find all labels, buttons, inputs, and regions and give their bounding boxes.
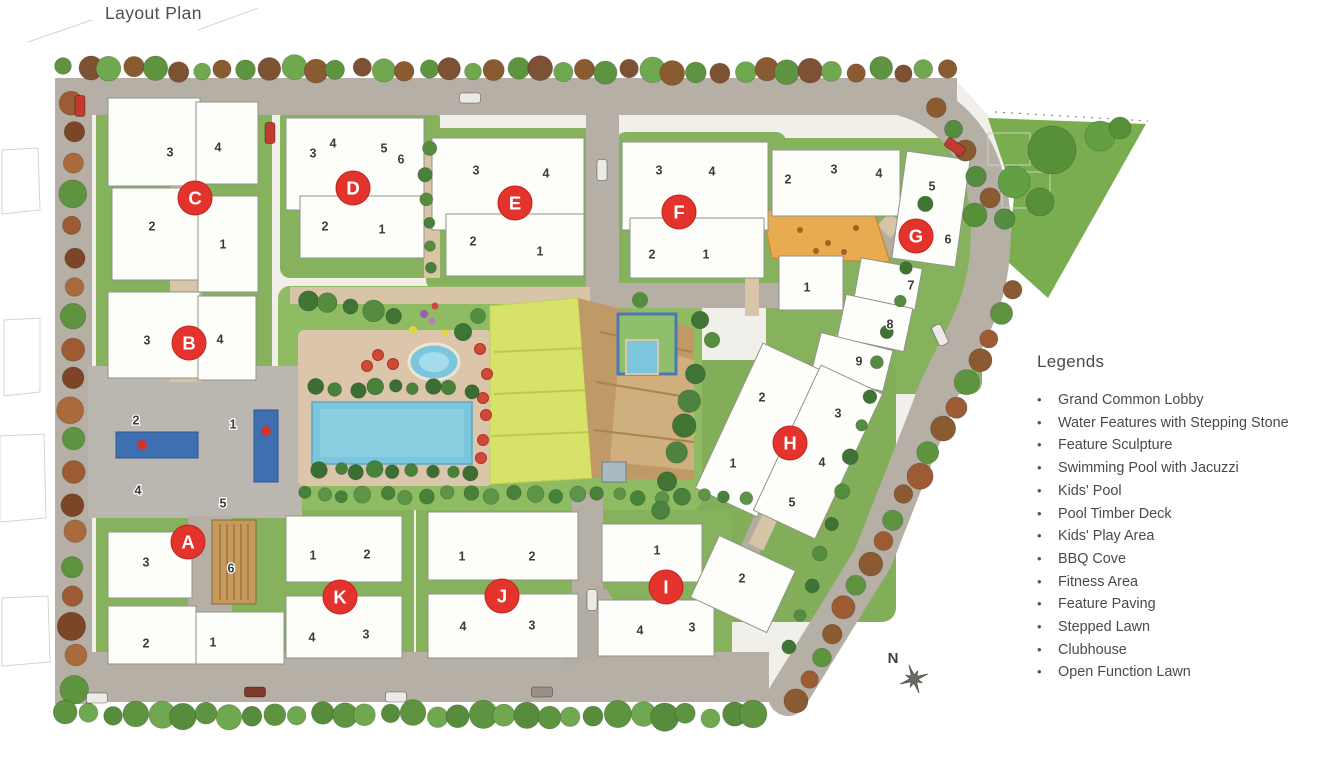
building-block: [286, 516, 402, 582]
tree-icon: [907, 463, 933, 489]
tree-icon: [874, 532, 893, 551]
map-detail: [419, 352, 449, 372]
map-area: [586, 113, 619, 305]
legend-item: •Pool Timber Deck: [1037, 503, 1323, 526]
tree-icon: [739, 700, 767, 728]
tree-icon: [242, 706, 262, 726]
tree-icon: [287, 706, 306, 725]
tree-icon: [590, 487, 604, 501]
tree-icon: [353, 704, 375, 726]
tree-icon: [463, 466, 478, 481]
map-area: [254, 410, 278, 482]
block-marker-J: J: [485, 579, 519, 613]
tree-icon: [424, 217, 435, 228]
car-icon: [265, 123, 275, 144]
tree-icon: [53, 700, 77, 724]
tree-icon: [651, 703, 679, 731]
building-block: [779, 256, 843, 310]
tree-icon: [143, 56, 167, 80]
tree-icon: [425, 241, 436, 252]
tree-icon: [61, 494, 84, 517]
tree-icon: [938, 60, 957, 79]
unit-number: 1: [703, 248, 710, 262]
tree-icon: [372, 59, 395, 82]
tree-icon: [549, 490, 563, 504]
tree-icon: [740, 492, 753, 505]
tree-icon: [405, 464, 418, 477]
bullet-icon: •: [1037, 525, 1058, 548]
tree-icon: [418, 168, 432, 182]
tree-icon: [900, 262, 913, 275]
unit-number: 3: [656, 164, 663, 178]
map-detail: [442, 330, 449, 337]
bullet-icon: •: [1037, 389, 1058, 412]
tree-icon: [441, 380, 456, 395]
unit-number: 3: [689, 621, 696, 635]
tree-icon: [194, 63, 211, 80]
tree-icon: [1003, 280, 1022, 299]
tree-icon: [317, 293, 337, 313]
tree-icon: [554, 62, 573, 81]
tree-icon: [1109, 117, 1131, 139]
block-marker-B: B: [172, 326, 206, 360]
unit-number: 4: [460, 620, 467, 634]
tree-icon: [65, 278, 84, 297]
tree-icon: [308, 378, 324, 394]
tree-icon: [825, 517, 838, 530]
tree-icon: [914, 60, 933, 79]
bullet-icon: •: [1037, 639, 1058, 662]
unit-number: 1: [654, 544, 661, 558]
unit-number: 6: [945, 233, 952, 247]
tree-icon: [594, 61, 617, 84]
compass-north-label: N: [888, 650, 899, 667]
block-marker-letter: G: [909, 226, 923, 247]
bullet-icon: •: [1037, 412, 1058, 435]
bullet-icon: •: [1037, 616, 1058, 639]
tree-icon: [419, 489, 434, 504]
tree-icon: [304, 59, 328, 83]
unit-number: 3: [831, 163, 838, 177]
building-block: [446, 214, 584, 276]
legend-item: •Fitness Area: [1037, 571, 1323, 594]
tree-icon: [264, 704, 286, 726]
tree-icon: [336, 463, 348, 475]
tree-icon: [856, 419, 868, 431]
tree-icon: [507, 485, 521, 499]
tree-icon: [678, 390, 701, 413]
unit-number: 5: [929, 180, 936, 194]
map-detail: [797, 227, 803, 233]
block-marker-G: G: [899, 219, 933, 253]
tree-icon: [311, 702, 334, 725]
unit-number: 2: [133, 414, 140, 428]
tree-icon: [847, 64, 865, 82]
tree-icon: [863, 390, 877, 404]
tree-icon: [354, 486, 371, 503]
tree-icon: [980, 188, 1000, 208]
car-icon: [75, 96, 85, 117]
block-marker-C: C: [178, 181, 212, 215]
map-detail: [704, 332, 720, 348]
map-area: [602, 462, 626, 482]
tree-icon: [426, 379, 442, 395]
tree-icon: [1028, 126, 1076, 174]
tree-icon: [917, 442, 939, 464]
unit-number: 5: [789, 496, 796, 510]
unit-number: 2: [785, 173, 792, 187]
tree-icon: [168, 62, 189, 83]
legend-list: •Grand Common Lobby•Water Features with …: [1037, 389, 1323, 684]
block-marker-I: I: [649, 570, 683, 604]
unit-number: 1: [459, 550, 466, 564]
map-detail: [362, 361, 373, 372]
tree-icon: [438, 57, 460, 79]
tree-icon: [990, 302, 1012, 324]
tree-icon: [859, 552, 883, 576]
tree-icon: [318, 488, 331, 501]
bullet-icon: •: [1037, 457, 1058, 480]
map-area: [762, 210, 890, 262]
unit-number: 2: [529, 550, 536, 564]
tree-icon: [62, 586, 83, 607]
tree-icon: [813, 648, 832, 667]
unit-number: 1: [537, 245, 544, 259]
unit-number: 4: [543, 167, 550, 181]
tree-icon: [560, 707, 580, 727]
building-block: [108, 98, 200, 186]
tree-icon: [701, 709, 720, 728]
legend-item: •Stepped Lawn: [1037, 616, 1323, 639]
tree-icon: [832, 596, 855, 619]
building-block: [428, 512, 578, 580]
tree-icon: [812, 546, 827, 561]
unit-number: 3: [310, 147, 317, 161]
tree-icon: [994, 209, 1015, 230]
map-detail: [476, 453, 487, 464]
tree-icon: [258, 58, 281, 81]
tree-icon: [62, 460, 85, 483]
bullet-icon: •: [1037, 503, 1058, 526]
tree-icon: [216, 704, 242, 730]
tree-icon: [954, 370, 979, 395]
tree-icon: [946, 397, 967, 418]
block-marker-letter: K: [333, 587, 347, 608]
unit-number: 4: [637, 624, 644, 638]
tree-icon: [798, 58, 823, 83]
building-block: [602, 524, 702, 582]
tree-icon: [381, 704, 400, 723]
tree-icon: [966, 166, 987, 187]
unit-number: 1: [230, 418, 237, 432]
map-detail: [409, 326, 417, 334]
tree-icon: [538, 706, 561, 729]
tree-icon: [842, 449, 858, 465]
tree-icon: [353, 58, 371, 76]
unit-number: 7: [908, 279, 915, 293]
map-line: [28, 20, 92, 42]
tree-icon: [394, 61, 414, 81]
tree-icon: [794, 610, 806, 622]
unit-number: 2: [649, 248, 656, 262]
bullet-icon: •: [1037, 571, 1058, 594]
legend-item: •Feature Sculpture: [1037, 434, 1323, 457]
map-detail: [841, 249, 847, 255]
tree-icon: [945, 120, 963, 138]
tree-icon: [367, 378, 384, 395]
unit-number: 4: [135, 484, 142, 498]
car-icon: [460, 93, 481, 103]
map-area: [2, 148, 40, 214]
tree-icon: [363, 300, 385, 322]
tree-icon: [325, 60, 344, 79]
map-area: [4, 318, 40, 396]
tree-icon: [805, 579, 819, 593]
block-marker-A: A: [171, 525, 205, 559]
car-icon: [245, 687, 266, 697]
unit-number: 8: [887, 318, 894, 332]
tree-icon: [969, 349, 992, 372]
map-detail: [481, 410, 492, 421]
unit-number: 2: [739, 572, 746, 586]
tree-icon: [448, 466, 460, 478]
tree-icon: [870, 356, 883, 369]
tree-icon: [311, 462, 328, 479]
bullet-icon: •: [1037, 548, 1058, 571]
tree-icon: [1026, 188, 1054, 216]
tree-icon: [65, 644, 87, 666]
tree-icon: [425, 262, 436, 273]
tree-icon: [528, 56, 553, 81]
car-icon: [597, 160, 607, 181]
map-detail: [482, 369, 493, 380]
map-detail: [261, 426, 271, 436]
legend-item: •Feature Paving: [1037, 593, 1323, 616]
map-detail: [813, 248, 819, 254]
unit-number: 1: [310, 549, 317, 563]
tree-icon: [660, 61, 685, 86]
unit-number: 2: [759, 391, 766, 405]
tree-icon: [675, 703, 695, 723]
bullet-icon: •: [1037, 661, 1058, 684]
unit-number: 4: [876, 167, 883, 181]
tree-icon: [61, 556, 82, 577]
legend-item: •Kids' Play Area: [1037, 525, 1323, 548]
block-marker-F: F: [662, 195, 696, 229]
map-detail: [691, 311, 709, 329]
tree-icon: [446, 705, 469, 728]
unit-number: 5: [220, 497, 227, 511]
map-area: [0, 434, 46, 522]
tree-icon: [483, 489, 499, 505]
block-marker-letter: A: [181, 532, 194, 553]
tree-icon: [493, 704, 515, 726]
tree-icon: [963, 203, 987, 227]
unit-number: 1: [379, 223, 386, 237]
unit-number: 3: [167, 146, 174, 160]
bullet-icon: •: [1037, 434, 1058, 457]
tree-icon: [614, 488, 626, 500]
tree-icon: [64, 520, 86, 542]
tree-icon: [685, 364, 705, 384]
map-detail: [388, 359, 399, 370]
tree-icon: [483, 59, 504, 80]
tree-icon: [465, 63, 482, 80]
block-marker-H: H: [773, 426, 807, 460]
map-detail: [478, 435, 489, 446]
page-title: Layout Plan: [105, 3, 202, 24]
legend-item: •Swimming Pool with Jacuzzi: [1037, 457, 1323, 480]
building-block: [198, 296, 256, 380]
map-detail: [632, 292, 648, 308]
tree-icon: [420, 193, 433, 206]
tree-icon: [59, 180, 87, 208]
tree-icon: [508, 57, 530, 79]
tree-icon: [666, 442, 688, 464]
tree-icon: [64, 121, 85, 142]
tree-icon: [65, 248, 85, 268]
tree-icon: [385, 465, 399, 479]
tree-icon: [123, 701, 149, 727]
map-detail: [853, 225, 859, 231]
tree-icon: [104, 706, 123, 725]
tree-icon: [62, 216, 80, 234]
tree-icon: [62, 427, 85, 450]
legend-item: •BBQ Cove: [1037, 548, 1323, 571]
tree-icon: [514, 702, 540, 728]
tree-icon: [604, 700, 631, 727]
tree-icon: [998, 166, 1030, 198]
tree-icon: [427, 707, 448, 728]
car-icon: [87, 693, 108, 703]
tree-icon: [96, 56, 121, 81]
unit-number: 2: [364, 548, 371, 562]
tree-icon: [423, 141, 437, 155]
unit-number: 2: [322, 220, 329, 234]
tree-icon: [420, 60, 438, 78]
block-marker-letter: F: [673, 202, 684, 223]
tree-icon: [926, 98, 946, 118]
map-detail: [825, 240, 831, 246]
tree-icon: [630, 491, 645, 506]
building-block: [598, 600, 714, 656]
block-marker-E: E: [498, 186, 532, 220]
unit-number: 2: [149, 220, 156, 234]
bullet-icon: •: [1037, 593, 1058, 616]
tree-icon: [62, 338, 85, 361]
tree-icon: [282, 55, 307, 80]
tree-icon: [335, 491, 347, 503]
tree-icon: [870, 56, 893, 79]
car-icon: [587, 590, 597, 611]
unit-number: 1: [210, 636, 217, 650]
unit-number: 4: [709, 165, 716, 179]
tree-icon: [389, 380, 402, 393]
tree-icon: [685, 62, 706, 83]
block-marker-letter: I: [663, 577, 668, 598]
unit-number: 3: [529, 619, 536, 633]
map-detail: [432, 303, 439, 310]
legend-item: •Water Features with Stepping Stone: [1037, 412, 1323, 435]
tree-icon: [657, 472, 676, 491]
tree-icon: [894, 295, 906, 307]
unit-number: 1: [804, 281, 811, 295]
tree-icon: [821, 61, 841, 81]
tree-icon: [406, 383, 418, 395]
car-icon: [532, 687, 553, 697]
map-area: [320, 409, 464, 457]
map-area: [116, 432, 198, 458]
tree-icon: [63, 153, 83, 173]
tree-icon: [835, 484, 850, 499]
tree-icon: [583, 706, 603, 726]
block-marker-letter: C: [188, 188, 201, 209]
tree-icon: [124, 56, 145, 77]
tree-icon: [570, 486, 586, 502]
unit-number: 3: [473, 164, 480, 178]
legend-item: •Clubhouse: [1037, 639, 1323, 662]
compass-star-icon: [900, 665, 928, 693]
tree-icon: [735, 62, 756, 83]
map-detail: [429, 318, 436, 325]
tree-icon: [846, 575, 866, 595]
unit-number: 1: [730, 457, 737, 471]
unit-number: 2: [143, 637, 150, 651]
tree-icon: [620, 59, 639, 78]
map-detail: [475, 344, 486, 355]
building-block: [108, 606, 196, 664]
tree-icon: [57, 612, 85, 640]
tree-icon: [774, 60, 799, 85]
tree-icon: [381, 486, 395, 500]
map-detail: [420, 310, 428, 318]
map-detail: [137, 440, 147, 450]
tree-icon: [883, 510, 903, 530]
tree-icon: [918, 196, 933, 211]
tree-icon: [351, 383, 366, 398]
tree-icon: [79, 703, 98, 722]
tree-icon: [718, 491, 730, 503]
tree-icon: [170, 703, 197, 730]
tree-icon: [213, 60, 231, 78]
unit-number: 4: [215, 141, 222, 155]
tree-icon: [527, 486, 544, 503]
block-marker-letter: J: [497, 586, 507, 607]
unit-number: 4: [330, 137, 337, 151]
tree-icon: [386, 308, 402, 324]
tree-icon: [398, 490, 412, 504]
block-marker-letter: D: [346, 178, 359, 199]
tree-icon: [931, 416, 956, 441]
tree-icon: [328, 383, 342, 397]
unit-number: 4: [819, 456, 826, 470]
unit-number: 1: [220, 238, 227, 252]
map-detail: [454, 323, 472, 341]
block-marker-letter: B: [182, 333, 195, 354]
legend-item: •Kids' Pool: [1037, 480, 1323, 503]
tree-icon: [60, 303, 86, 329]
tree-icon: [782, 640, 796, 654]
tree-icon: [299, 486, 311, 498]
map-detail: [373, 350, 384, 361]
layout-plan-page: 3421342145321634562134213421234567891231…: [0, 0, 1336, 762]
tree-icon: [57, 397, 84, 424]
map-area: [2, 596, 50, 666]
legend-item: •Grand Common Lobby: [1037, 389, 1323, 412]
tree-icon: [710, 63, 730, 83]
tree-icon: [343, 299, 358, 314]
tree-icon: [464, 486, 479, 501]
